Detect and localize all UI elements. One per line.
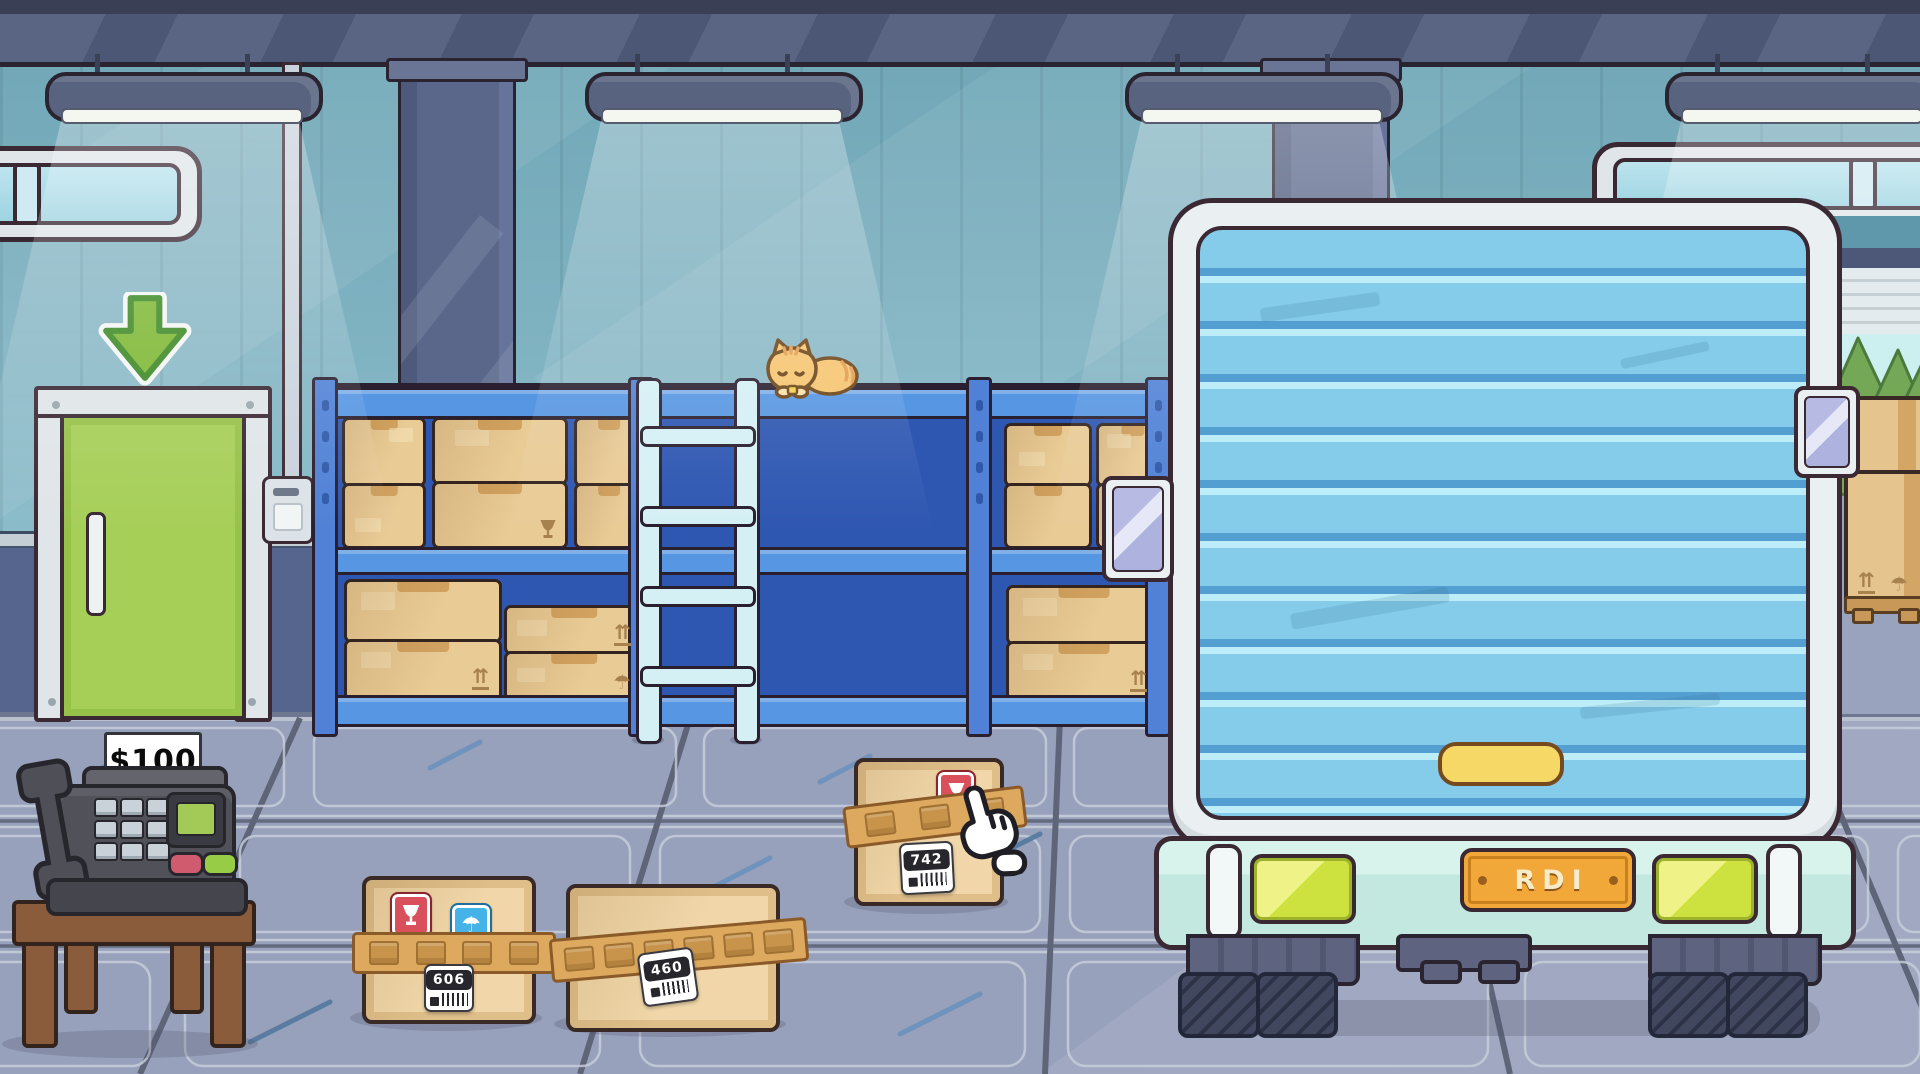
- warehouse-scene: ⇈ ⇈ ☂ ⇈: [0, 0, 1920, 1074]
- keypad-key[interactable]: [120, 842, 144, 861]
- column-cap: [386, 58, 528, 82]
- keypad-key[interactable]: [120, 798, 144, 817]
- shipping-label: 742: [899, 841, 956, 896]
- shipping-label: 606: [424, 964, 474, 1012]
- side-up-icon: ⇈: [1130, 668, 1147, 692]
- truck-wheel: [1726, 972, 1808, 1038]
- light-tube: [1681, 108, 1920, 124]
- light-tube: [1141, 108, 1383, 124]
- pallet-foot: [1898, 608, 1920, 624]
- truck-underbody: [1478, 960, 1520, 984]
- side-up-icon: ⇈: [614, 622, 631, 646]
- truck-wheel: [1648, 972, 1730, 1038]
- keep-dry-icon: ☂: [613, 672, 631, 692]
- ceiling-beam: [0, 14, 1920, 67]
- license-plate-text: RDI: [1487, 865, 1609, 896]
- table-leg: [170, 934, 204, 1014]
- table-leg: [210, 934, 246, 1048]
- bumper-strip: [1766, 844, 1802, 940]
- terminal-base: [46, 878, 248, 916]
- ceiling-strip: [0, 0, 1920, 14]
- truck-wheel: [1256, 972, 1338, 1038]
- ladder-rung: [640, 666, 756, 687]
- fragile-icon: [401, 903, 421, 927]
- barcode-icon: [908, 872, 947, 887]
- truck-rolling-door[interactable]: [1196, 226, 1810, 820]
- keypad-key[interactable]: [94, 798, 118, 817]
- shipping-label: 460: [637, 946, 700, 1007]
- truck-mirror-left: [1102, 476, 1174, 582]
- shelf-post: [966, 377, 992, 737]
- keypad-key[interactable]: [146, 842, 170, 861]
- box-number: 606: [426, 970, 472, 990]
- light-tube: [601, 108, 843, 124]
- shelf-box: ☂: [504, 651, 644, 701]
- shelf-box: ⇈: [1006, 641, 1162, 701]
- cancel-button[interactable]: [168, 852, 204, 876]
- light-tube: [61, 108, 303, 124]
- bumper-strip: [1206, 844, 1242, 940]
- side-up-icon: ⇈: [472, 666, 489, 690]
- pallet-foot: [1852, 608, 1874, 624]
- table-leg: [22, 934, 58, 1048]
- side-up-icon: ⇈: [1858, 570, 1875, 594]
- truck-mirror-right: [1794, 386, 1860, 478]
- keypad-key[interactable]: [94, 842, 118, 861]
- tail-light: [1652, 854, 1758, 924]
- box-number: 742: [903, 849, 950, 871]
- confirm-button[interactable]: [202, 852, 238, 876]
- tail-light: [1250, 854, 1356, 924]
- license-plate: RDI: [1460, 848, 1636, 912]
- barcode-icon: [430, 993, 468, 1006]
- window-divider: [13, 163, 41, 225]
- terminal-screen: [166, 792, 226, 848]
- table-leg: [64, 934, 98, 1014]
- barcode-icon: [650, 979, 689, 997]
- truck-underbody: [1420, 960, 1462, 984]
- fragile-icon: [539, 518, 557, 540]
- truck-door-handle[interactable]: [1438, 742, 1564, 786]
- keypad-key[interactable]: [120, 820, 144, 839]
- dock-stacked-box: [1850, 396, 1920, 480]
- column-shaft: [398, 60, 516, 396]
- truck-wheel: [1178, 972, 1260, 1038]
- box-number: 460: [643, 956, 692, 982]
- keep-dry-icon: ☂: [1890, 574, 1908, 594]
- keypad-key[interactable]: [94, 820, 118, 839]
- shelf-box: ⇈: [344, 639, 502, 701]
- dock-stacked-box: ⇈ ☂: [1844, 470, 1920, 606]
